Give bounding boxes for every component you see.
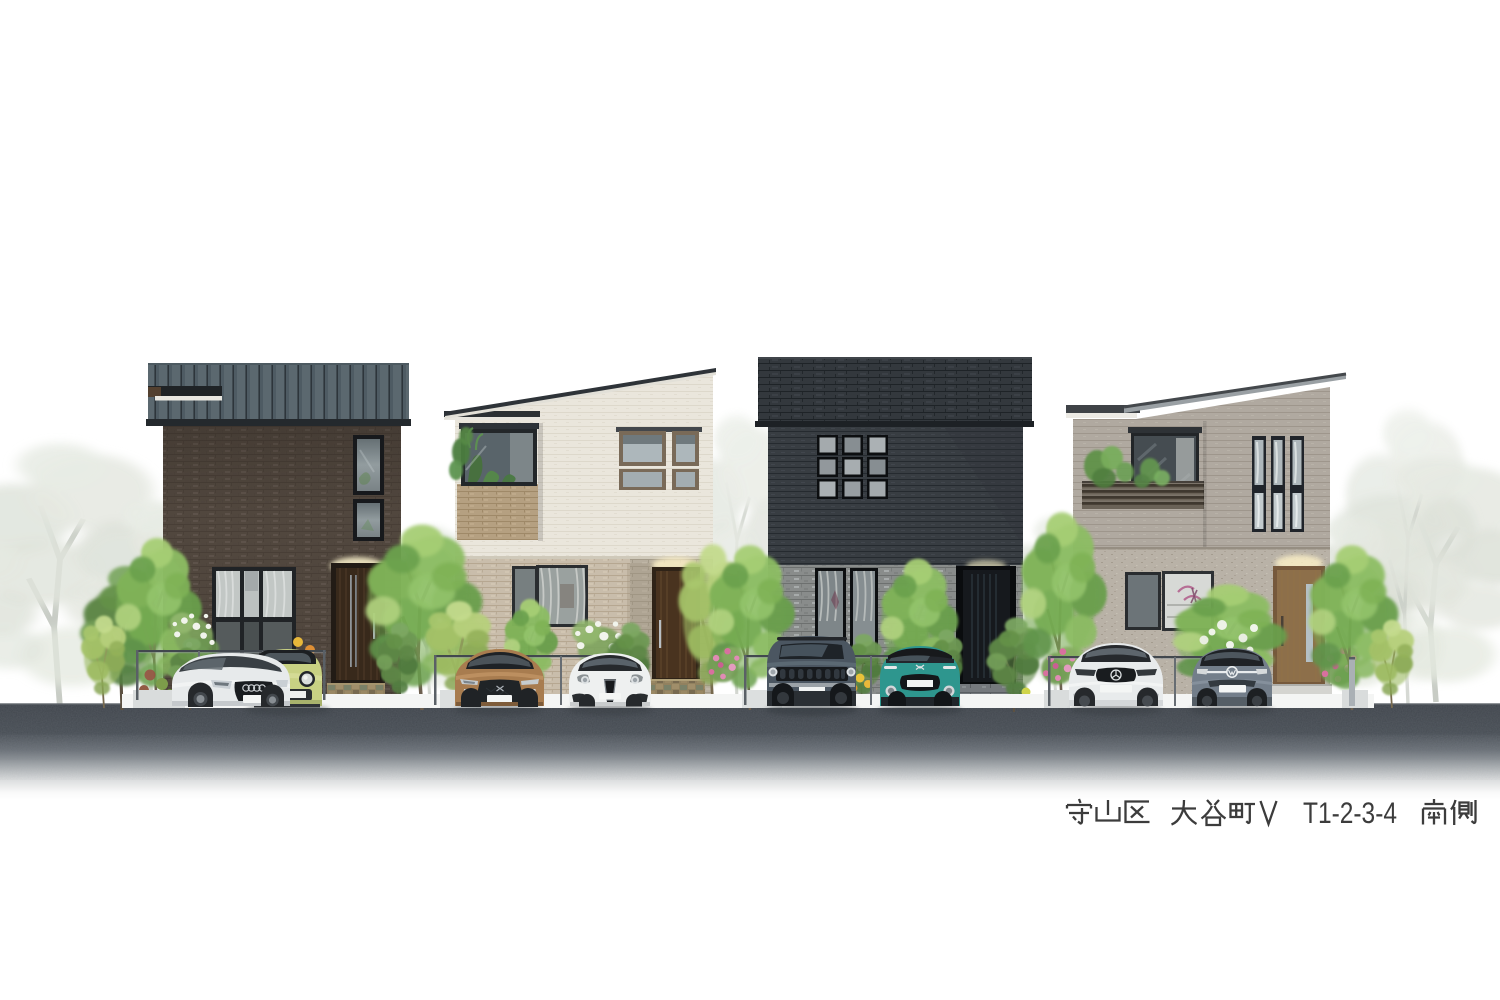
svg-text:T1-2-3-4: T1-2-3-4 bbox=[1303, 797, 1397, 830]
